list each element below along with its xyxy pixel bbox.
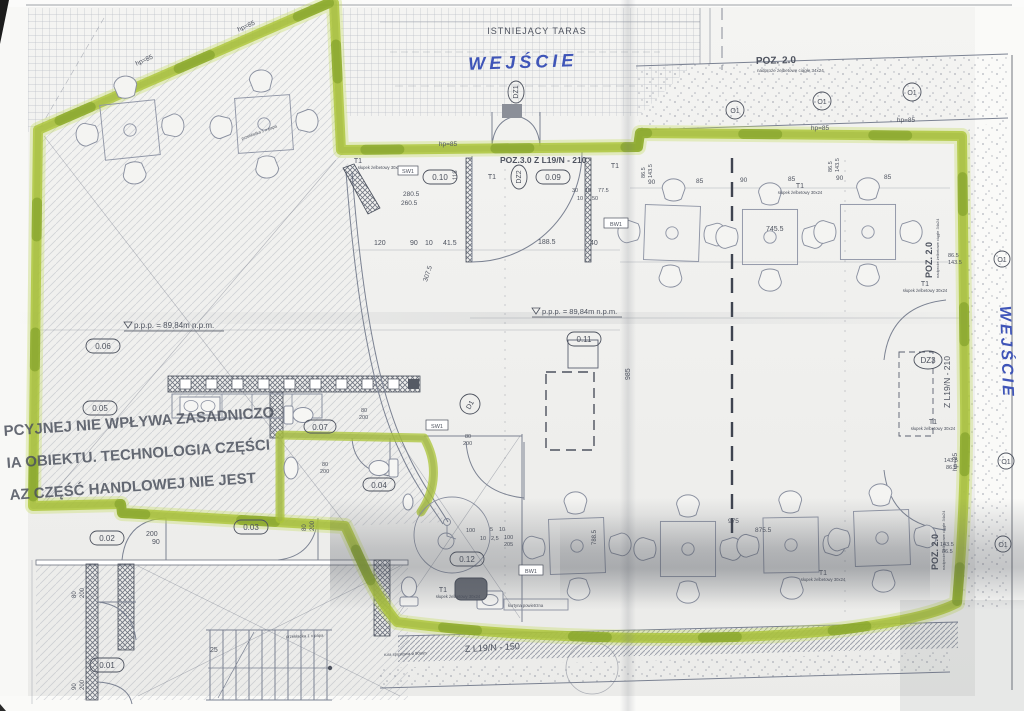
wall-solid-segment <box>408 379 419 389</box>
svg-text:p.p.p. = 89,84m n.p.m.: p.p.p. = 89,84m n.p.m. <box>134 321 214 330</box>
svg-text:O1: O1 <box>730 108 739 115</box>
door-dim: 80 <box>361 408 367 414</box>
svg-text:T1: T1 <box>921 281 929 288</box>
svg-text:0.09: 0.09 <box>545 173 561 182</box>
dim: 50 <box>592 196 598 202</box>
door-dim: 80 <box>302 524 308 531</box>
svg-text:słupek żelbetowy 30x24: słupek żelbetowy 30x24 <box>911 426 956 431</box>
svg-text:hp=85: hp=85 <box>952 452 959 471</box>
dim: 143.5 <box>648 164 654 178</box>
level-mark-2: p.p.p. = 89,84m n.p.m. <box>532 307 622 317</box>
svg-text:słupek żelbetowy 30x24: słupek żelbetowy 30x24 <box>358 165 403 170</box>
dim: 90 <box>648 179 656 186</box>
door-dim: 200 <box>359 415 368 421</box>
svg-text:0.07: 0.07 <box>312 423 328 432</box>
svg-text:O1: O1 <box>997 257 1006 264</box>
svg-text:T1: T1 <box>611 163 619 170</box>
dim: 10 <box>425 240 433 247</box>
lintel-right-label: Z L19/N - 210 <box>942 356 952 408</box>
toilet <box>284 406 313 424</box>
scanned-floor-plan: 120 90 10 41.5 188.5 40 745.5 90 85 90 8… <box>0 0 1024 711</box>
svg-text:0.04: 0.04 <box>371 481 387 490</box>
svg-text:SW1: SW1 <box>431 424 443 430</box>
svg-text:O1: O1 <box>907 90 916 97</box>
door-dim: 205 <box>504 542 513 548</box>
svg-text:słupek żelbetowy 30x24: słupek żelbetowy 30x24 <box>801 577 846 582</box>
dim: 2,5 <box>491 536 499 542</box>
svg-text:T1: T1 <box>354 158 362 165</box>
svg-text:hp=85: hp=85 <box>811 125 830 132</box>
svg-text:0.11: 0.11 <box>577 335 593 344</box>
svg-text:T1: T1 <box>796 183 804 190</box>
washbasin <box>284 457 298 479</box>
dim: 10 <box>499 527 505 533</box>
svg-text:DZ1: DZ1 <box>513 85 520 98</box>
svg-text:DZ2: DZ2 <box>516 170 523 183</box>
level-mark-1: p.p.p. = 89,84m n.p.m. <box>124 321 224 331</box>
svg-text:p.p.p. = 89,84m n.p.m.: p.p.p. = 89,84m n.p.m. <box>542 307 617 316</box>
dim: 188.5 <box>538 239 556 246</box>
door-dim: 80 <box>72 591 78 598</box>
svg-text:0.12: 0.12 <box>459 555 475 564</box>
dim: 25 <box>210 647 218 654</box>
svg-text:0.01: 0.01 <box>99 661 115 670</box>
svg-text:0.10: 0.10 <box>432 173 448 182</box>
svg-text:0.05: 0.05 <box>92 404 108 413</box>
dim: 10 <box>577 196 583 202</box>
dim: 143.5 <box>948 260 962 266</box>
door-dim: 90 <box>72 683 78 690</box>
kitchen-wall-windows <box>180 379 399 389</box>
existing-terrace-label: ISTNIEJĄCY TARAS <box>487 26 587 36</box>
poz20-label-top: POZ. 2.0 <box>756 55 797 67</box>
dim: 100 <box>466 528 475 534</box>
floor-plan-svg: 120 90 10 41.5 188.5 40 745.5 90 85 90 8… <box>0 0 1024 711</box>
poz20-note-right: nadproże żelbetowe ciągłe 34x24 <box>935 218 940 278</box>
dim: 745.5 <box>766 226 784 233</box>
dim: 85 <box>696 178 704 185</box>
poz30-label: POZ.3.0 Z L19/N - 210 <box>500 155 587 165</box>
door-dim: 200 <box>80 587 86 598</box>
svg-text:DZ3: DZ3 <box>920 356 936 365</box>
svg-text:słupek żelbetowy 30x24: słupek żelbetowy 30x24 <box>436 594 481 599</box>
door-dim: 200 <box>463 441 472 447</box>
toilet <box>369 459 398 477</box>
dim: 280.5 <box>403 191 420 198</box>
svg-text:T1: T1 <box>929 419 937 426</box>
svg-text:słupek żelbetowy 30x24: słupek żelbetowy 30x24 <box>903 288 948 293</box>
dim: 30 <box>572 188 578 194</box>
door-dim: 80 <box>465 434 471 440</box>
dim: 41.5 <box>443 240 457 247</box>
svg-text:SW1: SW1 <box>402 169 414 175</box>
door-dim: 200 <box>320 469 329 475</box>
dim: 10 <box>585 188 591 194</box>
entrance-mat <box>502 104 522 118</box>
dim: 90 <box>836 175 844 182</box>
dim: 143.5 <box>835 158 841 172</box>
dim: 85 <box>788 176 796 183</box>
door-dim: 200 <box>146 531 158 538</box>
svg-text:BW1: BW1 <box>525 569 537 575</box>
dim: 85 <box>884 174 892 181</box>
svg-text:0.03: 0.03 <box>243 523 259 532</box>
dim: 40 <box>590 240 598 247</box>
poz20-label-bottom-right: POZ. 2.0 <box>930 534 940 570</box>
door-dim: 200 <box>310 520 316 531</box>
svg-text:BW1: BW1 <box>610 222 622 228</box>
poz20-note-bottom-right: nadproże żelbetowe ciągłe 34x24 <box>941 510 946 570</box>
svg-text:O1: O1 <box>817 99 826 106</box>
svg-text:hp=85: hp=85 <box>439 141 458 148</box>
dim: 260.5 <box>401 200 418 207</box>
svg-text:T1: T1 <box>488 174 496 181</box>
poz20-label-right: POZ. 2.0 <box>924 242 934 278</box>
door-dim: 200 <box>80 679 86 690</box>
dim: 788.5 <box>592 529 598 545</box>
dim: 985 <box>625 368 632 380</box>
poz20-note-top: nadproże żelbetowe ciągłe 34x24 <box>757 68 824 73</box>
dim: 120 <box>374 240 386 247</box>
entrance-handwritten-top: WEJŚCIE <box>468 49 578 74</box>
svg-text:słupek żelbetowy 30x24: słupek żelbetowy 30x24 <box>778 190 823 195</box>
air-curtain-label: kurtyna powietrzna <box>508 603 544 608</box>
dim: 90 <box>410 240 418 247</box>
dim: 86.5 <box>641 167 647 178</box>
door-dim: 80 <box>322 462 328 468</box>
door-dim: 90 <box>152 539 160 546</box>
dim: 77.5 <box>598 188 609 194</box>
svg-text:T1: T1 <box>439 587 447 594</box>
dim: 10 <box>480 536 486 542</box>
dim: 975 <box>728 518 739 525</box>
svg-text:0.06: 0.06 <box>95 342 111 351</box>
svg-text:O1: O1 <box>1001 459 1010 466</box>
dim: 90 <box>740 177 748 184</box>
svg-text:O1: O1 <box>998 542 1007 549</box>
svg-text:hp=85: hp=85 <box>897 117 916 124</box>
svg-text:0.02: 0.02 <box>99 534 115 543</box>
svg-text:T1: T1 <box>819 570 827 577</box>
dim: 5 <box>490 527 493 533</box>
dim: 86.5 <box>948 253 959 259</box>
dim: 875.5 <box>755 527 772 534</box>
dim: 86.5 <box>828 161 834 172</box>
door-dim: 100 <box>504 535 513 541</box>
